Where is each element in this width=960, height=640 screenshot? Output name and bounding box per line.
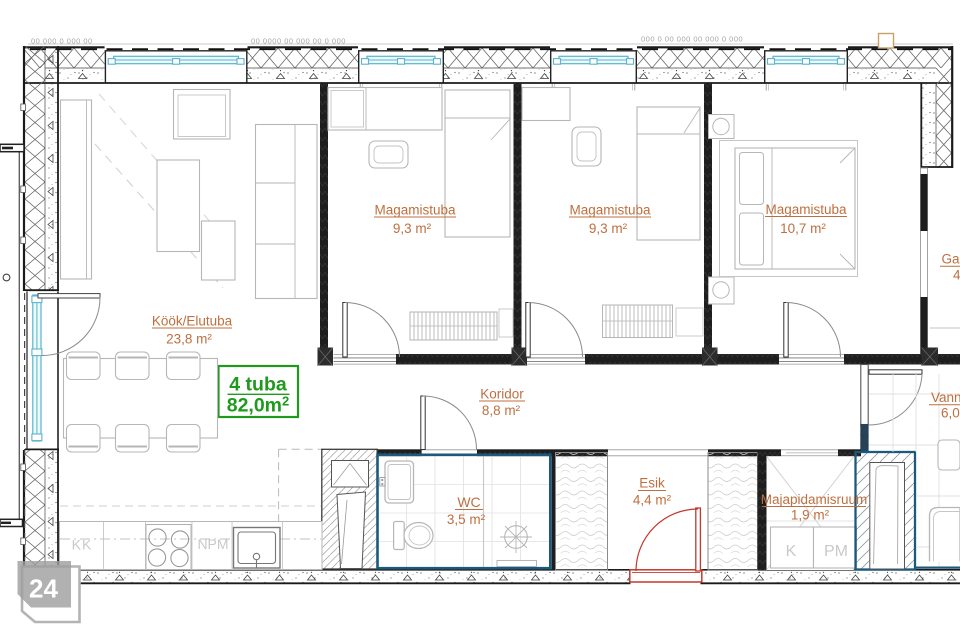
svg-text:Koridor: Koridor	[480, 387, 524, 402]
svg-text:10,7 m²: 10,7 m²	[780, 221, 826, 236]
svg-text:8,8 m²: 8,8 m²	[482, 403, 521, 418]
svg-text:4 tuba: 4 tuba	[229, 374, 287, 396]
svg-text:WC: WC	[457, 494, 480, 510]
svg-text:KK: KK	[72, 537, 93, 553]
svg-text:9,3 m²: 9,3 m²	[589, 221, 628, 236]
svg-text:Vannituba: Vannituba	[931, 390, 960, 405]
svg-text:4,5 m²: 4,5 m²	[953, 268, 960, 283]
svg-text:00 000 0 000 00: 00 000 0 000 00	[31, 37, 93, 46]
svg-text:Köök/Elutuba: Köök/Elutuba	[152, 314, 233, 329]
svg-text:4,4 m²: 4,4 m²	[633, 493, 672, 508]
svg-text:Magamistuba: Magamistuba	[765, 202, 847, 217]
svg-text:Magamistuba: Magamistuba	[374, 203, 456, 218]
svg-text:Garderoob: Garderoob	[942, 252, 960, 267]
svg-text:23,8 m²: 23,8 m²	[166, 332, 212, 347]
svg-text:PM: PM	[824, 543, 848, 560]
svg-text:Magamistuba: Magamistuba	[569, 203, 651, 218]
svg-text:K: K	[786, 543, 797, 560]
svg-text:000 0 00 000 00 000 0 000: 000 0 00 000 00 000 0 000	[641, 35, 743, 44]
svg-text:1,9 m²: 1,9 m²	[791, 508, 830, 523]
svg-text:24: 24	[29, 574, 58, 604]
svg-text:Esik: Esik	[639, 476, 665, 491]
svg-text:9,3 m²: 9,3 m²	[393, 221, 432, 236]
svg-text:82,0m2: 82,0m2	[227, 394, 290, 417]
svg-text:3,5 m²: 3,5 m²	[447, 512, 486, 527]
svg-text:Majapidamisruum: Majapidamisruum	[761, 492, 868, 507]
svg-text:00 0000 00 000 00 0 000: 00 0000 00 000 00 0 000	[251, 37, 346, 46]
svg-text:6,0 m²: 6,0 m²	[941, 406, 960, 421]
svg-text:NPM: NPM	[197, 536, 228, 552]
